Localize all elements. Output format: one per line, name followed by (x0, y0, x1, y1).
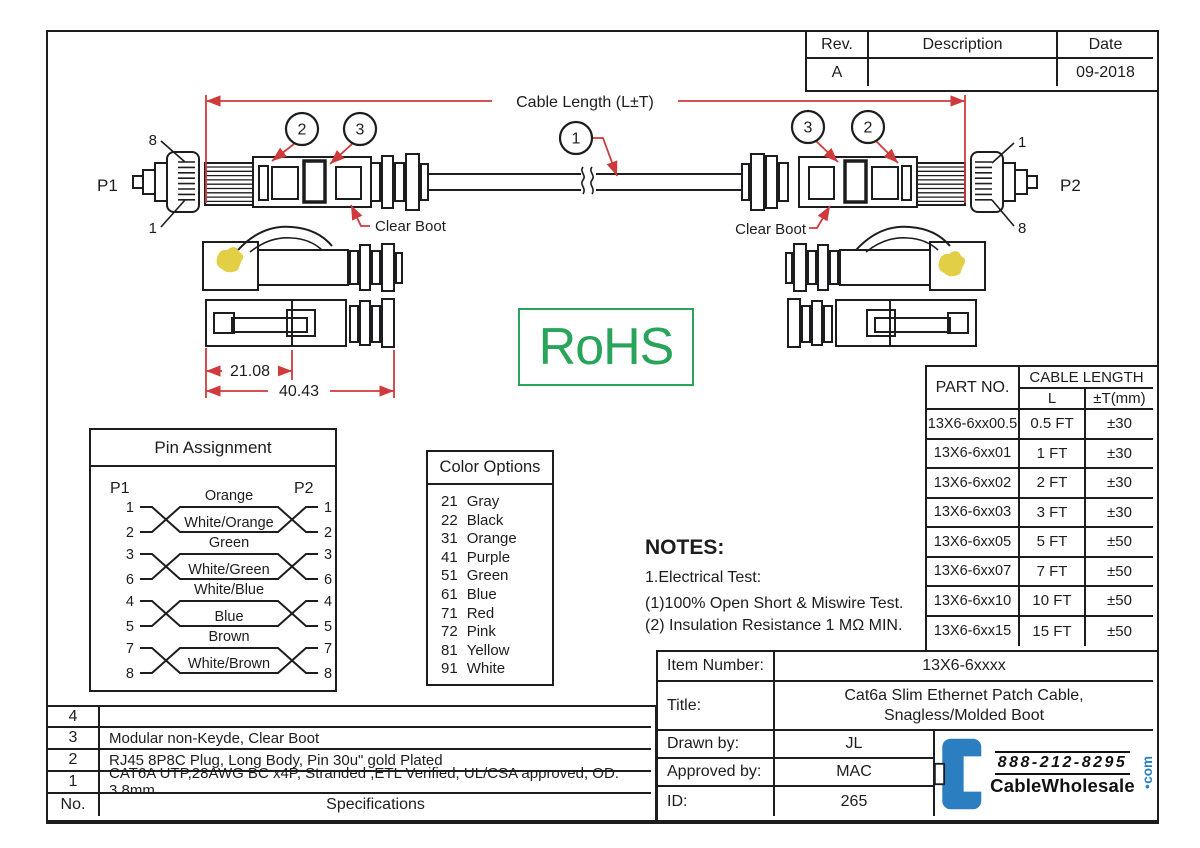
color-options-list: 21Gray 22Black 31Orange 41Purple 51Green… (428, 485, 552, 679)
pin-assignment-title: Pin Assignment (91, 430, 335, 467)
spec-row-no: 1 (48, 772, 100, 794)
notes-block: NOTES: 1.Electrical Test: (1)100% Open S… (645, 536, 935, 637)
approved-by-label: Approved by: (658, 759, 775, 787)
cable-length-header: CABLE LENGTH (1020, 367, 1153, 389)
logo-com: com • (1140, 756, 1155, 792)
description-value (869, 59, 1058, 86)
rev-header: Rev. (807, 32, 869, 59)
title-line-1: Cat6a Slim Ethernet Patch Cable, (844, 686, 1083, 706)
tolerance-cell: ±30 (1086, 410, 1153, 440)
color-name: Green (467, 567, 509, 586)
color-code: 22 (441, 512, 458, 531)
t-header: ±T(mm) (1086, 389, 1153, 410)
notes-line: 1.Electrical Test: (645, 567, 935, 589)
color-name: Blue (467, 586, 497, 605)
logo-text: 888-212-8295 CableWholesale (990, 751, 1135, 797)
tolerance-cell: ±30 (1086, 499, 1153, 529)
spec-row-text (100, 707, 651, 728)
color-option: 72Pink (441, 623, 552, 642)
part-no-header: PART NO. (927, 367, 1020, 410)
logo-c-icon (933, 735, 985, 813)
tolerance-cell: ±50 (1086, 617, 1153, 647)
logo-phone: 888-212-8295 (995, 751, 1131, 775)
length-cell: 2 FT (1020, 469, 1086, 499)
color-option: 31Orange (441, 530, 552, 549)
color-name: Yellow (467, 642, 510, 661)
drawing-sheet: Rev. Description Date A 09-2018 RoHS Pin… (0, 0, 1200, 848)
tolerance-cell: ±50 (1086, 528, 1153, 558)
color-name: Pink (467, 623, 496, 642)
color-code: 61 (441, 586, 458, 605)
color-option: 71Red (441, 605, 552, 624)
color-options-panel: Color Options 21Gray 22Black 31Orange 41… (426, 450, 554, 686)
spec-row-no: 3 (48, 728, 100, 750)
color-option: 91White (441, 660, 552, 679)
date-value: 09-2018 (1058, 59, 1153, 86)
color-code: 71 (441, 605, 458, 624)
color-option: 61Blue (441, 586, 552, 605)
logo-name: CableWholesale (990, 775, 1135, 797)
part-no-cell: 13X6-6xx05 (927, 528, 1020, 558)
color-code: 21 (441, 493, 458, 512)
id-value: 265 (775, 787, 935, 816)
cablewholesale-logo: 888-212-8295 CableWholesale com • (933, 735, 1155, 813)
approved-by-value: MAC (775, 759, 935, 787)
tolerance-cell: ±30 (1086, 469, 1153, 499)
logo-dot: • (1145, 783, 1150, 791)
color-option: 22Black (441, 512, 552, 531)
part-no-cell: 13X6-6xx00.5 (927, 410, 1020, 440)
color-code: 31 (441, 530, 458, 549)
tolerance-cell: ±30 (1086, 440, 1153, 470)
color-name: Purple (467, 549, 510, 568)
spec-row-text: Modular non-Keyde, Clear Boot (100, 728, 651, 750)
color-name: Orange (467, 530, 517, 549)
color-code: 51 (441, 567, 458, 586)
color-code: 41 (441, 549, 458, 568)
id-label: ID: (658, 787, 775, 816)
pin-assignment-panel: Pin Assignment (89, 428, 337, 692)
part-number-table: PART NO. CABLE LENGTH L ±T(mm) 13X6-6xx0… (925, 365, 1159, 652)
color-option: 41Purple (441, 549, 552, 568)
spec-row-no: 4 (48, 707, 100, 728)
color-options-title: Color Options (428, 452, 552, 485)
spec-footer-label: Specifications (100, 794, 651, 816)
part-no-cell: 13X6-6xx01 (927, 440, 1020, 470)
date-header: Date (1058, 32, 1153, 59)
spec-row-text: CAT6A UTP,28AWG BC x4P, Stranded ,ETL Ve… (100, 772, 651, 794)
part-no-cell: 13X6-6xx10 (927, 587, 1020, 617)
title-value: Cat6a Slim Ethernet Patch Cable, Snagles… (775, 682, 1153, 731)
title-line-2: Snagless/Molded Boot (844, 706, 1083, 726)
color-name: Red (467, 605, 495, 624)
drawn-by-value: JL (775, 731, 935, 759)
title-label: Title: (658, 682, 775, 731)
color-name: Gray (467, 493, 500, 512)
length-cell: 0.5 FT (1020, 410, 1086, 440)
color-code: 91 (441, 660, 458, 679)
title-block: Item Number: 13X6-6xxxx Title: Cat6a Sli… (656, 650, 1159, 822)
color-option: 51Green (441, 567, 552, 586)
spec-row-no: 2 (48, 750, 100, 772)
spec-footer-no: No. (48, 794, 100, 816)
notes-line: (1)100% Open Short & Miswire Test. (645, 593, 935, 615)
color-code: 72 (441, 623, 458, 642)
description-header: Description (869, 32, 1058, 59)
color-name: White (467, 660, 505, 679)
logo-cell: 888-212-8295 CableWholesale com • (935, 731, 1153, 816)
part-no-cell: 13X6-6xx02 (927, 469, 1020, 499)
rev-value: A (807, 59, 869, 86)
length-cell: 7 FT (1020, 558, 1086, 588)
revision-table: Rev. Description Date A 09-2018 (805, 30, 1159, 92)
item-number-label: Item Number: (658, 652, 775, 682)
length-cell: 10 FT (1020, 587, 1086, 617)
color-code: 81 (441, 642, 458, 661)
length-cell: 5 FT (1020, 528, 1086, 558)
rohs-badge: RoHS (518, 308, 694, 386)
color-name: Black (467, 512, 504, 531)
part-no-cell: 13X6-6xx03 (927, 499, 1020, 529)
l-header: L (1020, 389, 1086, 410)
drawn-by-label: Drawn by: (658, 731, 775, 759)
length-cell: 1 FT (1020, 440, 1086, 470)
tolerance-cell: ±50 (1086, 558, 1153, 588)
notes-line: (2) Insulation Resistance 1 MΩ MIN. (645, 615, 935, 637)
specifications-table: 4 3 Modular non-Keyde, Clear Boot 2 RJ45… (46, 705, 657, 822)
color-option: 81Yellow (441, 642, 552, 661)
part-no-cell: 13X6-6xx15 (927, 617, 1020, 647)
length-cell: 15 FT (1020, 617, 1086, 647)
notes-title: NOTES: (645, 536, 935, 560)
tolerance-cell: ±50 (1086, 587, 1153, 617)
color-option: 21Gray (441, 493, 552, 512)
length-cell: 3 FT (1020, 499, 1086, 529)
part-no-cell: 13X6-6xx07 (927, 558, 1020, 588)
item-number-value: 13X6-6xxxx (775, 652, 1153, 682)
